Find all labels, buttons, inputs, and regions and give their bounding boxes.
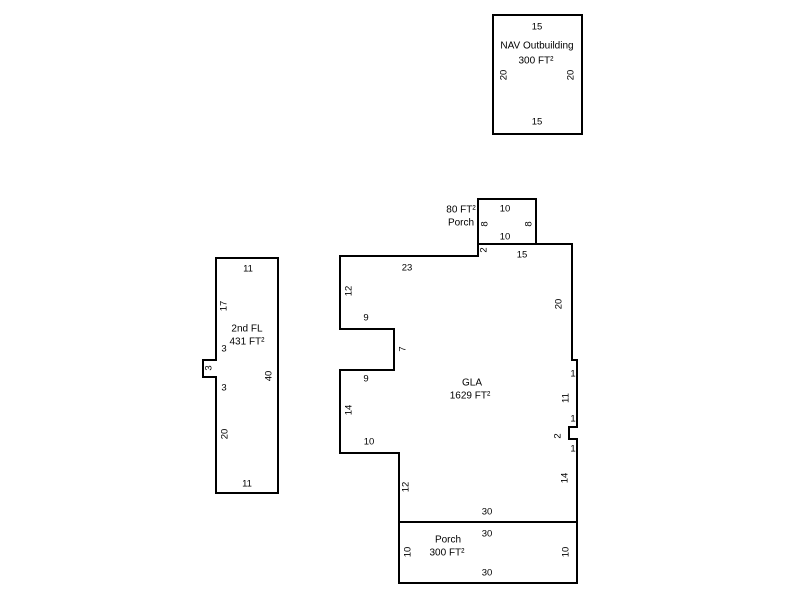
second-floor-label-dim: 20 xyxy=(220,429,231,440)
top-porch-label-dim: 10 xyxy=(500,204,511,215)
gla-label-dim: 23 xyxy=(402,263,413,274)
second-floor-label-name: 2nd FL xyxy=(231,324,263,335)
floorplan-sketch-page: 2321512209719GLA1629 FT²1114121011412308… xyxy=(0,0,800,600)
bottom-porch-label-name: Porch xyxy=(435,535,461,546)
gla-label-name: 1629 FT² xyxy=(450,391,491,402)
second-floor-label-dim: 11 xyxy=(243,264,253,275)
sketch-canvas: 2321512209719GLA1629 FT²1114121011412308… xyxy=(0,0,800,600)
nav-outbuilding-label-name: 300 FT² xyxy=(518,56,554,67)
second-floor-label-dim: 3 xyxy=(204,365,215,370)
gla-label-dim: 10 xyxy=(364,437,375,448)
top-porch-label-name: 80 FT² xyxy=(446,205,476,216)
second-floor-label-dim: 3 xyxy=(221,383,226,394)
gla-label-dim: 12 xyxy=(401,482,412,493)
nav-outbuilding-label-dim: 15 xyxy=(532,117,543,128)
gla-label-dim: 30 xyxy=(482,507,493,518)
gla-outline xyxy=(340,244,577,522)
nav-outbuilding-label-dim: 20 xyxy=(499,70,510,81)
gla-label-dim: 7 xyxy=(398,346,409,351)
gla-label-dim: 2 xyxy=(479,247,490,252)
gla-label-dim: 12 xyxy=(344,286,355,297)
nav-outbuilding-label-dim: 20 xyxy=(566,70,577,81)
gla-label-dim: 1 xyxy=(570,369,575,380)
second-floor-label-dim: 3 xyxy=(221,344,226,355)
bottom-porch-label-name: 300 FT² xyxy=(429,548,465,559)
gla-label-dim: 9 xyxy=(363,374,368,385)
gla-label-dim: 15 xyxy=(517,250,528,261)
nav-outbuilding-label-name: NAV Outbuilding xyxy=(500,41,573,52)
second-floor-label-dim: 17 xyxy=(219,301,230,312)
gla-label-dim: 1 xyxy=(570,414,575,425)
top-porch-label-dim: 8 xyxy=(524,221,535,226)
second-floor-label-dim: 40 xyxy=(264,371,275,382)
bottom-porch-label-dim: 30 xyxy=(482,568,493,579)
gla-label-dim: 2 xyxy=(553,433,564,438)
gla-label-dim: 14 xyxy=(560,473,571,484)
second-floor-label-dim: 11 xyxy=(242,479,252,490)
gla-label-dim: 9 xyxy=(363,313,368,324)
gla-label-name: GLA xyxy=(462,378,482,389)
bottom-porch-label-dim: 10 xyxy=(561,547,572,558)
gla-label-dim: 11 xyxy=(561,393,572,403)
top-porch-label-name: Porch xyxy=(448,218,474,229)
gla-label-dim: 1 xyxy=(570,444,575,455)
gla-label-dim: 20 xyxy=(554,299,565,310)
bottom-porch-label-dim: 10 xyxy=(403,547,414,558)
second-floor-label-name: 431 FT² xyxy=(229,337,265,348)
nav-outbuilding-label-dim: 15 xyxy=(532,22,543,33)
bottom-porch-label-dim: 30 xyxy=(482,529,493,540)
gla-label-dim: 14 xyxy=(344,405,355,416)
top-porch-label-dim: 8 xyxy=(480,221,491,226)
top-porch-label-dim: 10 xyxy=(500,232,511,243)
